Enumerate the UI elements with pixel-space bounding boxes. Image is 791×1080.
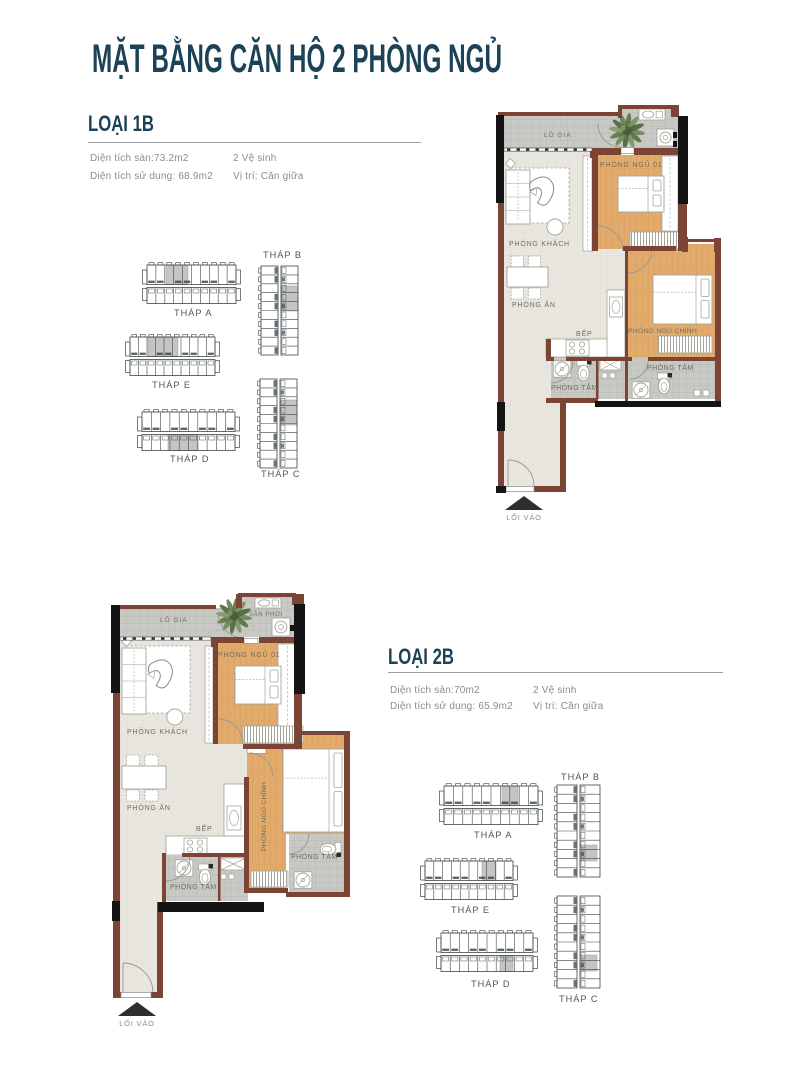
svg-text:THÁP C: THÁP C	[261, 469, 301, 479]
svg-text:PHÒNG TẮM: PHÒNG TẮM	[170, 882, 217, 891]
svg-text:PHÒNG NGỦ CHÍNH: PHÒNG NGỦ CHÍNH	[259, 782, 268, 851]
svg-text:PHÒNG KHÁCH: PHÒNG KHÁCH	[509, 239, 570, 248]
svg-text:THÁP B: THÁP B	[263, 250, 302, 260]
svg-text:PHÒNG ĂN: PHÒNG ĂN	[127, 803, 171, 812]
svg-text:LÔ GIA: LÔ GIA	[544, 130, 572, 139]
svg-text:LỐI VÀO: LỐI VÀO	[119, 1018, 155, 1028]
svg-text:THÁP A: THÁP A	[474, 830, 513, 840]
svg-text:PHÒNG TẮM: PHÒNG TẮM	[291, 852, 338, 861]
svg-text:THÁP E: THÁP E	[152, 380, 191, 390]
svg-text:PHÒNG KHÁCH: PHÒNG KHÁCH	[127, 727, 188, 736]
svg-text:LỐI VÀO: LỐI VÀO	[506, 512, 542, 522]
svg-text:PHÒNG TẮM: PHÒNG TẮM	[551, 383, 598, 392]
svg-text:THÁP E: THÁP E	[451, 905, 490, 915]
svg-text:PHÒNG TẮM: PHÒNG TẮM	[647, 363, 694, 372]
svg-text:PHÒNG NGỦ 01: PHÒNG NGỦ 01	[218, 650, 281, 659]
svg-text:THÁP A: THÁP A	[174, 308, 213, 318]
svg-text:PHÒNG NGỦ CHÍNH: PHÒNG NGỦ CHÍNH	[628, 326, 697, 335]
svg-text:THÁP B: THÁP B	[561, 772, 600, 782]
svg-text:SÂN PHƠI: SÂN PHƠI	[249, 611, 283, 618]
svg-text:PHÒNG NGỦ 01: PHÒNG NGỦ 01	[600, 160, 663, 169]
svg-text:THÁP C: THÁP C	[559, 994, 599, 1004]
svg-text:THÁP D: THÁP D	[471, 979, 511, 989]
svg-text:LÔ GIA: LÔ GIA	[160, 615, 188, 624]
svg-text:THÁP D: THÁP D	[170, 454, 210, 464]
svg-text:PHÒNG ĂN: PHÒNG ĂN	[512, 300, 556, 309]
